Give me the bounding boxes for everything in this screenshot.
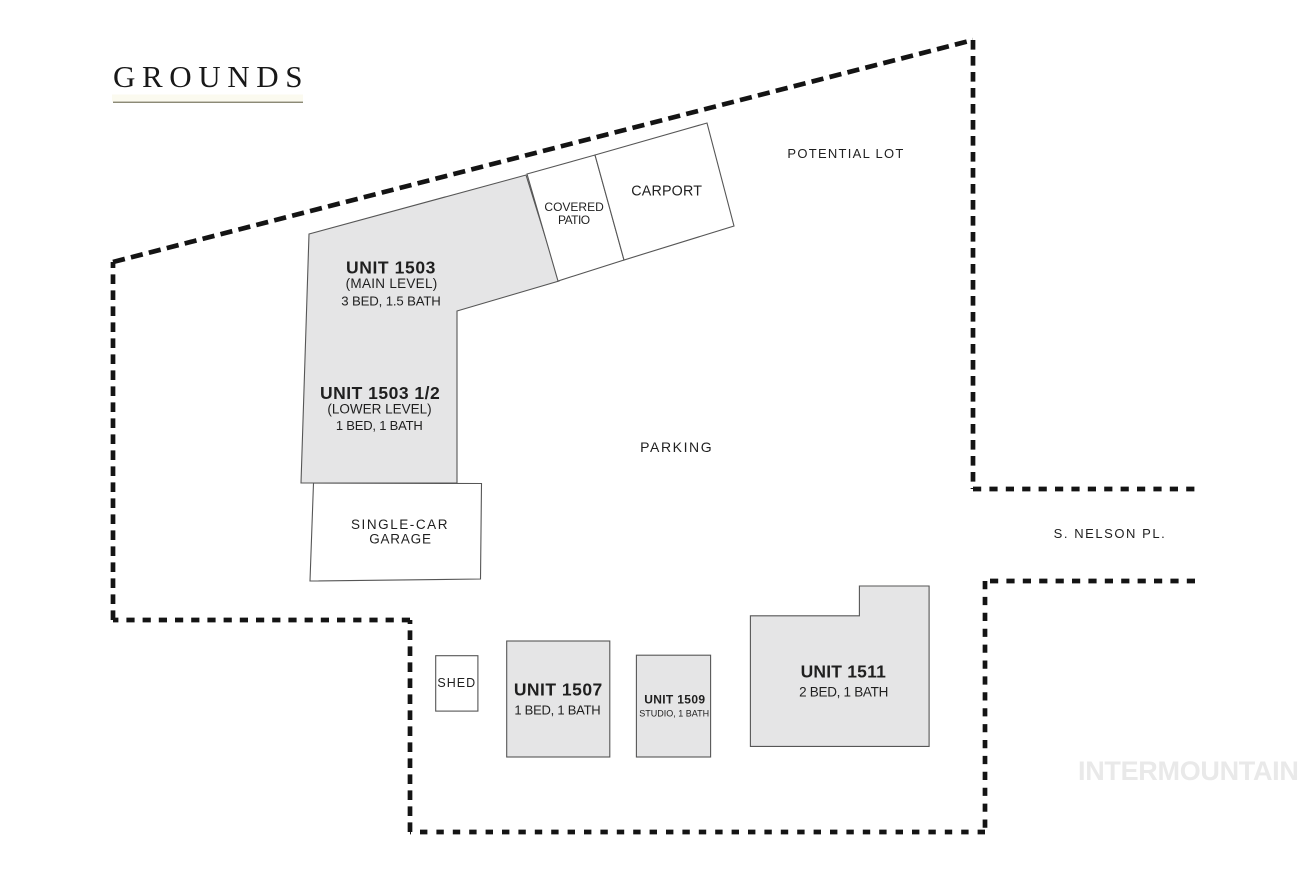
svg-text:GROUNDS: GROUNDS xyxy=(113,59,309,94)
svg-text:UNIT 1511: UNIT 1511 xyxy=(801,661,887,681)
svg-text:(LOWER LEVEL): (LOWER LEVEL) xyxy=(327,401,431,416)
svg-text:POTENTIAL LOT: POTENTIAL LOT xyxy=(787,146,904,161)
svg-text:3 BED, 1.5 BATH: 3 BED, 1.5 BATH xyxy=(341,294,440,309)
svg-text:UNIT 1507: UNIT 1507 xyxy=(514,680,603,700)
svg-text:STUDIO, 1 BATH: STUDIO, 1 BATH xyxy=(639,708,709,718)
svg-text:UNIT 1509: UNIT 1509 xyxy=(644,693,705,707)
svg-text:(MAIN LEVEL): (MAIN LEVEL) xyxy=(346,276,438,291)
svg-text:CARPORT: CARPORT xyxy=(631,183,702,199)
svg-text:SINGLE-CAR: SINGLE-CAR xyxy=(351,517,449,532)
svg-text:1 BED, 1 BATH: 1 BED, 1 BATH xyxy=(514,702,600,717)
svg-text:1 BED, 1 BATH: 1 BED, 1 BATH xyxy=(336,418,423,433)
svg-text:INTERMOUNTAIN: INTERMOUNTAIN xyxy=(1078,756,1299,786)
svg-text:GARAGE: GARAGE xyxy=(369,532,432,547)
svg-text:2 BED, 1 BATH: 2 BED, 1 BATH xyxy=(799,684,888,699)
svg-text:SHED: SHED xyxy=(437,676,476,690)
svg-text:PARKING: PARKING xyxy=(640,439,713,455)
svg-text:UNIT 1503 1/2: UNIT 1503 1/2 xyxy=(320,383,440,403)
svg-text:S. NELSON PL.: S. NELSON PL. xyxy=(1054,526,1167,541)
svg-text:UNIT 1503: UNIT 1503 xyxy=(346,258,436,278)
svg-text:PATIO: PATIO xyxy=(558,213,590,227)
